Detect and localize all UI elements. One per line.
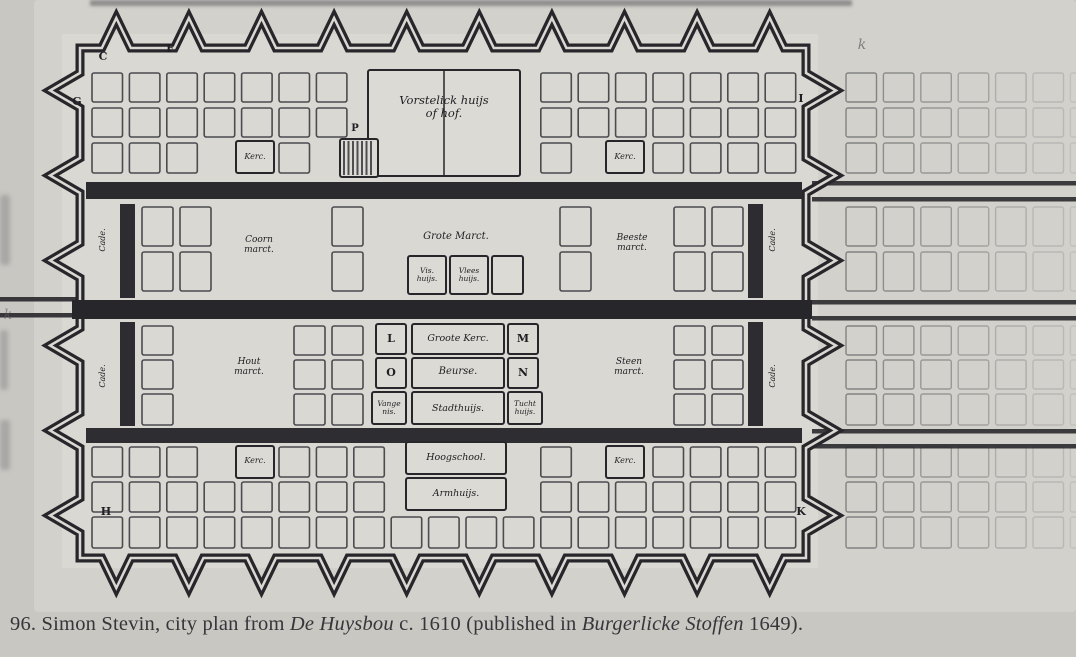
pencil-mark-top-right: k [854, 38, 870, 54]
label-letter-P: P [347, 122, 363, 136]
label-kerc-top-right: Kerc. [606, 147, 644, 167]
label-kerc-top-left: Kerc. [236, 147, 274, 167]
label-letter-C: C [96, 50, 110, 64]
label-armhuijs: Armhuijs. [406, 484, 506, 504]
label-cade-left-lower: Cade. [96, 354, 110, 398]
label-palace: Vorstelick huijs of hof. [368, 86, 520, 128]
label-vis-huijs: Vis. huijs. [408, 258, 446, 292]
label-kerc-bottom-left: Kerc. [236, 451, 274, 471]
figure-caption: 96. Simon Stevin, city plan from De Huys… [10, 613, 1060, 636]
label-letter-M: M [508, 328, 538, 350]
caption-title-burgerlicke-stoffen: Burgerlicke Stoffen [582, 613, 744, 635]
label-groote-kerc: Groote Kerc. [412, 330, 504, 348]
label-letter-I: I [794, 92, 808, 106]
page-smudge [0, 330, 8, 390]
label-steen-marct: Steen marct. [592, 348, 666, 386]
label-letter-L: L [376, 328, 406, 350]
label-stadthuijs: Stadthuijs. [412, 400, 504, 418]
label-letter-F: F [163, 42, 177, 56]
pencil-mark-left-edge: k [1, 308, 15, 324]
label-grote-marct: Grote Marct. [384, 228, 528, 246]
label-hoogschool: Hoogschool. [406, 448, 506, 468]
label-hout-marct: Hout marct. [212, 348, 286, 386]
label-tucht-huijs: Tucht huijs. [508, 394, 542, 422]
label-cade-right-lower: Cade. [766, 354, 780, 398]
label-letter-K: K [794, 505, 808, 519]
caption-part-4: 1649). [744, 613, 803, 635]
label-coorn-marct: Coorn marct. [224, 226, 294, 264]
label-letter-N: N [508, 362, 538, 384]
label-letter-H: H [99, 505, 113, 519]
label-beeste-marct: Beeste marct. [596, 224, 668, 262]
city-plan-engraving [0, 0, 1076, 657]
label-letter-O: O [376, 362, 406, 384]
scanned-book-page: Vorstelick huijs of hof. Kerc. Kerc. Ker… [0, 0, 1076, 657]
page-smudge [0, 195, 10, 265]
caption-part-2: c. 1610 (published in [394, 613, 582, 635]
page-smudge [0, 420, 10, 470]
label-vangenis: Vange nis. [372, 394, 406, 422]
label-cade-right-upper: Cade. [766, 218, 780, 262]
label-vlees-huijs: Vlees huijs. [450, 258, 488, 292]
label-beurse: Beurse. [412, 363, 504, 381]
label-kerc-bottom-right: Kerc. [606, 451, 644, 471]
label-cade-left-upper: Cade. [96, 218, 110, 262]
caption-title-de-huysbou: De Huysbou [290, 613, 394, 635]
label-letter-G: G [70, 95, 84, 109]
scan-shadow [90, 0, 852, 6]
caption-part-0: 96. Simon Stevin, city plan from [10, 613, 290, 635]
